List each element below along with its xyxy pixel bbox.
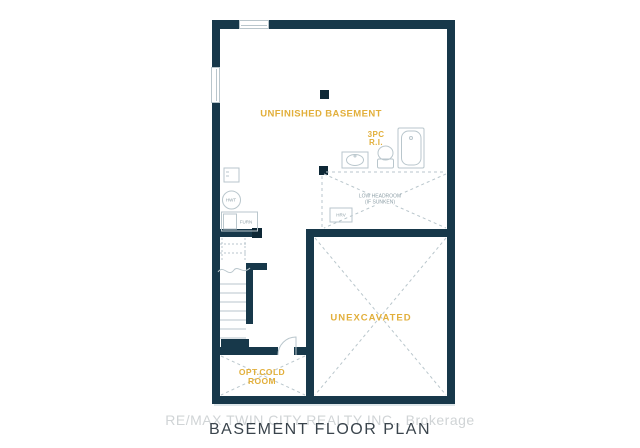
wall-exterior-bottom bbox=[212, 396, 455, 404]
wall-coldroom-top-right bbox=[294, 347, 314, 355]
wall-utility-south bbox=[220, 229, 254, 237]
window-top bbox=[239, 20, 269, 29]
label-furnace: FURN bbox=[240, 220, 253, 225]
support-post bbox=[320, 90, 329, 99]
electrical-panel-icon bbox=[224, 168, 239, 182]
wall-end-post bbox=[252, 228, 262, 238]
room-label-3pc-line2: R.I. bbox=[368, 139, 385, 147]
room-label-3pc-rough-in: 3PC R.I. bbox=[368, 131, 385, 147]
room-label-unexcavated: UNEXCAVATED bbox=[330, 313, 411, 324]
window-glass-line bbox=[216, 69, 217, 101]
wall-coldroom-top-left bbox=[220, 347, 278, 355]
wall-unexcavated-left bbox=[306, 229, 314, 396]
window-glass-line bbox=[241, 25, 267, 26]
label-hrv: HRV bbox=[336, 213, 345, 218]
wall-stair-side bbox=[246, 263, 253, 324]
stair-base-landing bbox=[221, 339, 249, 348]
room-label-unfinished-basement: UNFINISHED BASEMENT bbox=[260, 109, 382, 120]
note-low-headroom-line2: (IF SUNKEN) bbox=[359, 200, 401, 206]
page-title: BASEMENT FLOOR PLAN bbox=[0, 421, 640, 439]
note-low-headroom: LOW HEADROOM (IF SUNKEN) bbox=[357, 195, 403, 206]
support-post bbox=[319, 166, 328, 175]
toilet-icon bbox=[378, 146, 394, 168]
wall-shadow bbox=[214, 404, 455, 406]
wall-unexcavated-top bbox=[306, 229, 447, 237]
label-hwt: HWT bbox=[226, 198, 236, 203]
basement-floor-plan: UNFINISHED BASEMENT 3PC R.I. UNEXCAVATED… bbox=[0, 0, 640, 448]
wall-exterior-right bbox=[447, 20, 455, 404]
bathtub-icon bbox=[398, 128, 424, 168]
room-label-cold-room-line2: ROOM bbox=[239, 377, 285, 386]
window-left bbox=[211, 67, 220, 103]
room-label-cold-room: OPT.COLD ROOM bbox=[239, 368, 285, 386]
sink-vanity-icon bbox=[342, 152, 368, 168]
